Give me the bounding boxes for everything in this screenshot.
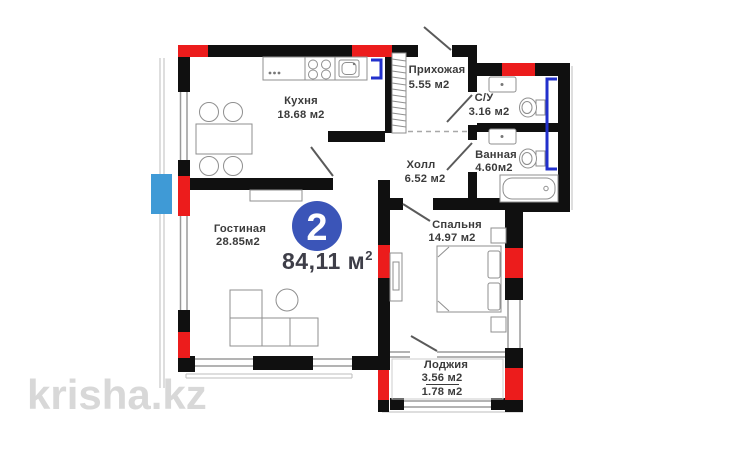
watermark: krisha.kz (27, 371, 207, 418)
floor-plan-page: Кухня 18.68 м2 Прихожая 5.55 м2 С/У 3.16… (0, 0, 750, 470)
loggia-door (411, 336, 437, 351)
bathroom-door (447, 143, 472, 170)
hall-label: Холл (407, 159, 436, 171)
floor-plan: Кухня 18.68 м2 Прихожая 5.55 м2 С/У 3.16… (0, 0, 750, 470)
bathroom-toilet (536, 151, 545, 166)
bedroom-area: 14.97 м2 (428, 232, 475, 244)
loggia-area-half: 1.78 м2 (422, 386, 463, 398)
bedroom-label: Спальня (432, 219, 482, 231)
living-room-area: 28.85м2 (216, 236, 260, 248)
coffee-table (276, 289, 298, 311)
hallway-area: 5.55 м2 (409, 79, 450, 91)
total-area: 84,11 м2 (282, 248, 373, 274)
wardrobe-hatch (392, 53, 406, 133)
living-room-label: Гостиная (214, 223, 266, 235)
total-area-sup: 2 (365, 248, 373, 263)
bathroom-area: 4.60м2 (475, 162, 512, 174)
tv-stand (250, 190, 302, 201)
wc-area: 3.16 м2 (469, 106, 510, 118)
room-count: 2 (306, 207, 327, 249)
summary-badge: 2 84,11 м2 (282, 201, 373, 274)
wc-label: С/У (475, 92, 495, 104)
hall-area: 6.52 м2 (405, 173, 446, 185)
entry-door (424, 27, 451, 50)
wc-toilet (536, 100, 545, 115)
kitchen-label: Кухня (284, 95, 318, 107)
nightstand (491, 228, 506, 243)
loggia-area-total: 3.56 м2 (422, 372, 463, 384)
bathroom-label: Ванная (475, 149, 517, 161)
dining-table (196, 124, 252, 154)
nightstand (491, 317, 506, 332)
hallway-label: Прихожая (409, 64, 466, 76)
room-labels: Кухня 18.68 м2 Прихожая 5.55 м2 С/У 3.16… (214, 64, 517, 398)
bedroom-door (403, 204, 430, 221)
kitchen-area: 18.68 м2 (277, 109, 324, 121)
wardrobe (390, 253, 402, 301)
loggia-label: Лоджия (424, 359, 468, 371)
kitchen-door (311, 147, 333, 176)
total-area-value: 84,11 м (282, 248, 365, 274)
ac-unit (151, 174, 172, 214)
